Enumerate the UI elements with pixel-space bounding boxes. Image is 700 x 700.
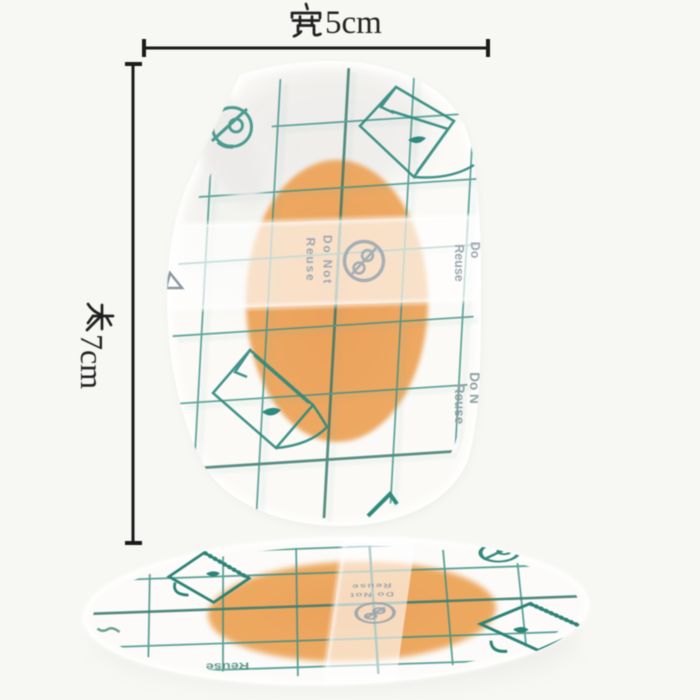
svg-text:5cm: 5cm bbox=[325, 5, 382, 41]
svg-text:Reuse: Reuse bbox=[351, 582, 392, 590]
svg-text:Reuse: Reuse bbox=[304, 237, 318, 282]
svg-text:Do Not: Do Not bbox=[321, 235, 335, 285]
svg-text:7cm: 7cm bbox=[74, 334, 110, 389]
svg-text:Do Not: Do Not bbox=[349, 591, 394, 599]
svg-text:Reuse: Reuse bbox=[452, 384, 467, 425]
svg-text:Reuse: Reuse bbox=[206, 660, 250, 673]
svg-text:Do: Do bbox=[468, 242, 482, 259]
svg-text:Reuse: Reuse bbox=[452, 244, 466, 282]
